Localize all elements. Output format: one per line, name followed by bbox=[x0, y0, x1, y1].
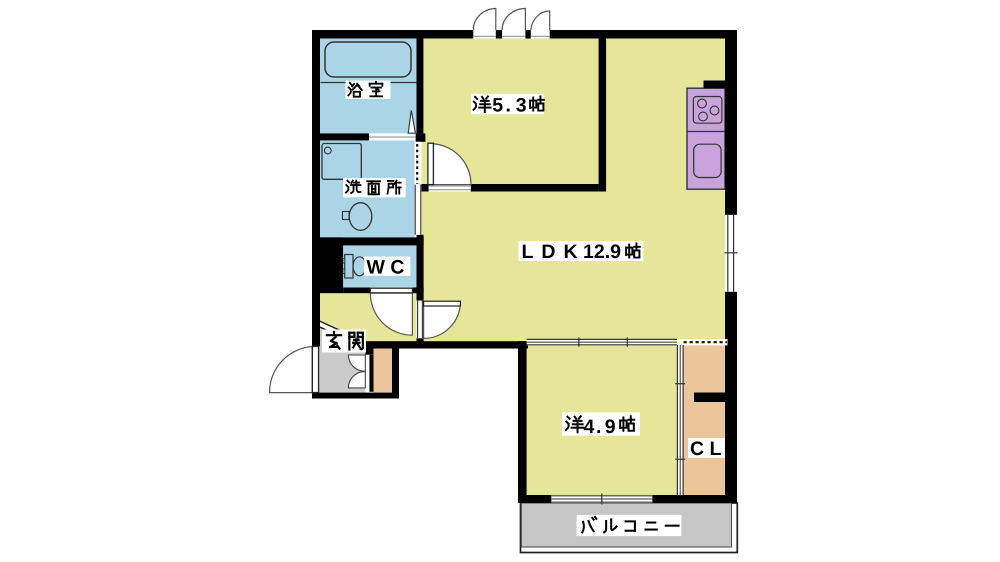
svg-text:.: . bbox=[596, 416, 601, 438]
svg-text:4: 4 bbox=[584, 416, 595, 438]
svg-text:C: C bbox=[690, 438, 704, 460]
svg-text:.: . bbox=[506, 94, 511, 116]
svg-text:5: 5 bbox=[492, 94, 503, 116]
svg-text:WC: WC bbox=[367, 256, 411, 278]
svg-text:12.9: 12.9 bbox=[583, 241, 621, 263]
svg-text:9: 9 bbox=[605, 416, 616, 438]
svg-text:LDK: LDK bbox=[522, 241, 586, 263]
svg-text:L: L bbox=[710, 438, 722, 460]
svg-text:3: 3 bbox=[516, 94, 527, 116]
